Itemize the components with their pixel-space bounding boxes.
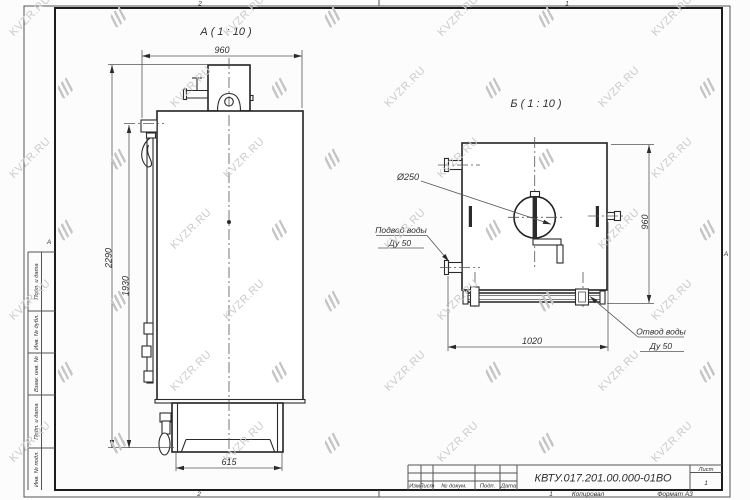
margin-label: Инв. № подл.: [34, 451, 40, 487]
tb-copied-label: Копировал: [572, 491, 605, 498]
tb-sheet-label: Лист: [698, 467, 714, 473]
callout-inlet: Подвод воды Ду 50: [375, 225, 449, 262]
tb-format-label: Формат А3: [657, 491, 693, 498]
tb-col-izm: Изм: [409, 484, 420, 490]
dim-a-height-body: 1930: [121, 276, 131, 296]
view-a-chimney-tab: [250, 96, 253, 101]
callout-outlet-text: Отвод воды: [636, 327, 686, 337]
sheet-frame: 2 1 2 1 А А: [24, 0, 730, 498]
callout-outlet-dn: Ду 50: [649, 341, 672, 351]
view-b: Б ( 1 : 10 ): [438, 98, 624, 308]
view-a: А ( 1 : 10 ): [124, 26, 305, 460]
view-a-title: А ( 1 : 10 ): [199, 26, 252, 38]
dim-a-depth: 960: [214, 45, 229, 55]
callout-outlet: Отвод воды Ду 50: [590, 297, 687, 352]
view-b-drain-block: [576, 289, 589, 305]
dim-b-width: 1020: [522, 336, 542, 346]
zone-number: 1: [549, 491, 553, 498]
view-b-title: Б ( 1 : 10 ): [510, 98, 562, 110]
zone-number: 2: [196, 491, 201, 498]
tb-col-data: Дата: [500, 484, 517, 490]
view-a-door-hardware: [142, 133, 156, 383]
view-a-base-latch: [159, 413, 171, 455]
view-a-base: [172, 403, 283, 452]
tb-sheet-number: 1: [704, 480, 708, 487]
title-block: Изм Лист № докум. Подп. Дата КВТУ.017.20…: [408, 465, 722, 498]
tb-col-list: Лист: [419, 484, 435, 490]
margin-label: Инв. № дубл.: [34, 314, 40, 350]
dim-a-base-width: 615: [221, 457, 237, 467]
view-a-side-fitting: [141, 120, 157, 132]
drawing-sheet: 2 1 2 1 А А Подп. и дата Инв. № дубл. Вз…: [0, 0, 750, 500]
margin-label: Подп. и дата: [34, 403, 40, 440]
margin-label: Взам. инв. №: [34, 356, 40, 392]
view-b-slot-right: [596, 206, 599, 227]
tb-col-docnum: № докум.: [441, 484, 467, 490]
dim-a-height-overall: 2290: [104, 248, 114, 269]
callout-inlet-text: Подвод воды: [375, 225, 427, 235]
view-a-boiler-body: [157, 111, 303, 400]
zone-number: 1: [565, 1, 569, 8]
margin-label: Подп. и дата: [34, 263, 40, 300]
dim-b-height: 960: [640, 214, 650, 229]
margin-columns: Подп. и дата Инв. № дубл. Взам. инв. № П…: [28, 252, 55, 490]
tb-doc-number: КВТУ.017.201.00.000-01ВО: [534, 473, 671, 485]
tb-col-podp: Подп.: [480, 484, 495, 490]
zone-letter-left: А: [46, 239, 51, 246]
zone-letter-right: А: [723, 251, 728, 258]
zone-number: 2: [197, 1, 202, 8]
view-a-vent-pipe: [184, 78, 209, 100]
engineering-drawing: 2 1 2 1 А А Подп. и дата Инв. № дубл. Вз…: [0, 0, 750, 500]
callout-inlet-dn: Ду 50: [388, 238, 411, 248]
view-b-slot-left: [469, 206, 472, 227]
dim-b-diameter: Ø250: [396, 172, 419, 182]
